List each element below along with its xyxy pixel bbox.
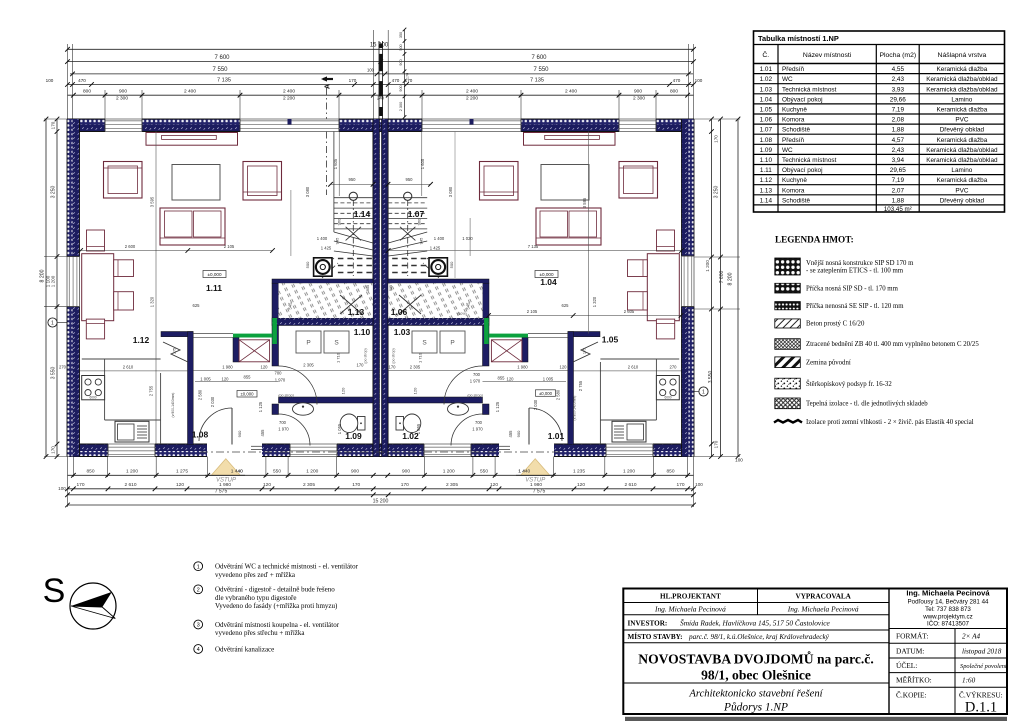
svg-text:500: 500: [399, 44, 403, 50]
svg-text:1:60: 1:60: [962, 677, 976, 685]
svg-text:2,43: 2,43: [892, 76, 905, 83]
svg-text:2 400: 2 400: [283, 89, 295, 95]
svg-text:2 105: 2 105: [224, 244, 235, 249]
svg-text:2 610: 2 610: [124, 482, 136, 488]
svg-text:2 610: 2 610: [628, 365, 639, 370]
svg-text:1,88: 1,88: [892, 197, 905, 204]
svg-text:DATUM:: DATUM:: [896, 647, 924, 656]
svg-text:Vyvedeno do fasády (+mřížka pr: Vyvedeno do fasády (+mřížka proti hmyzu): [215, 602, 338, 610]
svg-text:2 030: 2 030: [210, 396, 215, 407]
svg-text:parc.č. 98/1, k.ú.Olešnice, kr: parc.č. 98/1, k.ú.Olešnice, kraj Králove…: [688, 633, 830, 641]
svg-text:1 235: 1 235: [573, 468, 585, 474]
svg-text:vyvedeno přes zeď + mřížka: vyvedeno přes zeď + mřížka: [215, 571, 296, 579]
svg-text:470: 470: [78, 78, 86, 83]
svg-text:1 200: 1 200: [623, 468, 635, 474]
svg-text:1.02: 1.02: [760, 76, 773, 83]
svg-text:Č.KOPIE:: Č.KOPIE:: [896, 690, 927, 700]
svg-text:7 135: 7 135: [530, 78, 544, 84]
svg-text:2 755: 2 755: [149, 385, 154, 396]
svg-text:2,07: 2,07: [892, 187, 905, 194]
svg-text:170: 170: [714, 135, 719, 143]
svg-text:7 550: 7 550: [533, 67, 549, 73]
svg-text:120: 120: [176, 482, 184, 488]
svg-text:Tepelná izolace - tl. dle jedn: Tepelná izolace - tl. dle jednotlivých s…: [806, 401, 928, 408]
svg-text:Obývací pokoj: Obývací pokoj: [782, 96, 823, 103]
svg-text:800: 800: [670, 89, 678, 95]
svg-text:170: 170: [406, 73, 410, 79]
svg-text:1.04: 1.04: [540, 277, 557, 287]
svg-text:HL.PROJEKTANT: HL.PROJEKTANT: [660, 593, 721, 601]
svg-text:960: 960: [417, 218, 422, 225]
svg-text:Keramická dlažba: Keramická dlažba: [937, 137, 988, 144]
svg-text:Odvětrání kanalizace: Odvětrání kanalizace: [215, 645, 274, 653]
svg-text:Tabulka místností 1.NP: Tabulka místností 1.NP: [758, 34, 839, 43]
svg-text:1.09: 1.09: [760, 147, 773, 154]
svg-text:Vnější nosná konstrukce SIP SD: Vnější nosná konstrukce SIP SD 170 m: [806, 260, 914, 267]
svg-text:7 600: 7 600: [214, 55, 230, 61]
svg-text:2 300: 2 300: [399, 102, 403, 112]
svg-text:Název místnosti: Název místnosti: [803, 52, 852, 59]
svg-text:1.14: 1.14: [760, 197, 773, 204]
svg-text:625: 625: [193, 303, 201, 308]
svg-text:3 595: 3 595: [582, 197, 587, 208]
svg-text:3 080: 3 080: [305, 186, 310, 197]
svg-text:905: 905: [366, 285, 370, 291]
svg-text:470: 470: [392, 78, 400, 83]
svg-text:900: 900: [119, 89, 127, 95]
svg-text:NOVOSTAVBA DVOJDOMŮ na parc.č.: NOVOSTAVBA DVOJDOMŮ na parc.č.: [638, 651, 873, 667]
svg-text:550: 550: [480, 468, 488, 474]
svg-text:1.08: 1.08: [760, 137, 773, 144]
svg-text:1 980: 1 980: [517, 364, 528, 369]
svg-text:1.09: 1.09: [345, 431, 362, 441]
svg-text:Schodiště: Schodiště: [782, 197, 811, 204]
svg-text:Č.: Č.: [762, 50, 769, 59]
svg-text:905: 905: [389, 285, 393, 291]
svg-text:Šmída Radek, Havlíčkova 145, 5: Šmída Radek, Havlíčkova 145, 517 50 Čast…: [680, 618, 831, 628]
svg-text:±0,000: ±0,000: [539, 391, 553, 396]
svg-text:±0,000: ±0,000: [539, 272, 553, 277]
svg-text:Komora: Komora: [782, 117, 805, 124]
svg-text:P: P: [450, 340, 454, 347]
svg-text:2 605: 2 605: [624, 309, 635, 314]
svg-text:(po strop): (po strop): [364, 348, 368, 363]
svg-text:2 300: 2 300: [116, 95, 128, 101]
svg-text:1: 1: [702, 390, 705, 396]
svg-text:Keramická dlažba: Keramická dlažba: [937, 177, 988, 184]
svg-text:3,93: 3,93: [892, 86, 905, 93]
svg-text:2 580: 2 580: [556, 389, 561, 400]
svg-text:170: 170: [76, 482, 84, 488]
svg-text:Štěrkopískový podsyp fr. 16-32: Štěrkopískový podsyp fr. 16-32: [806, 380, 892, 388]
svg-text:3 550: 3 550: [51, 367, 57, 380]
svg-text:- se zateplením ETICS - tl. 10: - se zateplením ETICS - tl. 100 mm: [806, 268, 904, 275]
svg-text:1.10: 1.10: [354, 327, 371, 337]
svg-text:1 275: 1 275: [176, 468, 188, 474]
svg-text:1 320: 1 320: [592, 296, 597, 307]
svg-text:29,65: 29,65: [890, 167, 906, 174]
svg-text:Keramická dlažba/obklad: Keramická dlažba/obklad: [926, 147, 998, 154]
svg-text:3 595: 3 595: [150, 196, 155, 207]
svg-text:900: 900: [399, 59, 403, 65]
svg-text:175: 175: [583, 348, 587, 354]
svg-text:Společné povolení: Společné povolení: [960, 663, 1008, 670]
svg-text:1.13: 1.13: [348, 307, 365, 317]
svg-text:listopad 2018: listopad 2018: [962, 648, 1002, 656]
svg-text:2 755: 2 755: [578, 380, 583, 391]
svg-text:Příčka nenosná SE SIP - tl. 12: Příčka nenosná SE SIP - tl. 120 mm: [806, 303, 904, 310]
svg-text:(60%): (60%): [457, 312, 467, 316]
svg-text:Č.VÝKRESU:: Č.VÝKRESU:: [959, 690, 1003, 700]
svg-text:PVC: PVC: [955, 187, 969, 194]
svg-text:1 710: 1 710: [418, 352, 423, 363]
svg-text:1 005: 1 005: [200, 377, 211, 382]
svg-text:Beton prostý C 16/20: Beton prostý C 16/20: [806, 321, 865, 328]
svg-text:Ztracené bednění ZB 40 tl. 400: Ztracené bednění ZB 40 tl. 400 mm vyplně…: [806, 341, 979, 348]
svg-text:3 250: 3 250: [714, 186, 720, 199]
svg-text:1 320: 1 320: [150, 296, 155, 307]
svg-text:7 600: 7 600: [531, 55, 547, 61]
svg-text:dle vybraného typu digestoře: dle vybraného typu digestoře: [215, 594, 296, 602]
svg-text:2 600: 2 600: [125, 244, 136, 249]
svg-text:2 300: 2 300: [633, 95, 645, 101]
svg-text:4,55: 4,55: [892, 66, 905, 73]
svg-text:1.10: 1.10: [760, 157, 773, 164]
svg-text:1.01: 1.01: [760, 66, 773, 73]
svg-text:960: 960: [337, 218, 342, 225]
svg-text:100: 100: [695, 78, 703, 83]
svg-text:170: 170: [349, 78, 357, 83]
svg-text:Dřevěný obklad: Dřevěný obklad: [940, 197, 985, 204]
svg-text:900: 900: [237, 430, 242, 437]
svg-text:2 580: 2 580: [198, 389, 203, 400]
svg-text:550: 550: [273, 468, 281, 474]
svg-text:2 105: 2 105: [527, 309, 538, 314]
svg-text:(v:900-1400mm): (v:900-1400mm): [171, 393, 175, 418]
svg-text:6000: 6000: [89, 396, 96, 400]
svg-text:850: 850: [86, 468, 94, 474]
svg-text:2 305: 2 305: [303, 482, 315, 488]
svg-text:700: 700: [279, 420, 287, 425]
svg-text:Keramická dlažba: Keramická dlažba: [937, 107, 988, 114]
svg-text:1 425: 1 425: [321, 246, 332, 251]
svg-text:2 200: 2 200: [466, 95, 478, 101]
svg-text:855: 855: [244, 375, 252, 380]
svg-text:A: A: [325, 84, 332, 89]
svg-text:2 610: 2 610: [123, 365, 134, 370]
svg-text:120: 120: [413, 387, 418, 394]
svg-text:FORMÁT:: FORMÁT:: [896, 631, 929, 641]
svg-text:350: 350: [399, 32, 403, 38]
svg-text:Technická místnost: Technická místnost: [782, 86, 837, 93]
svg-text:Odvětrání WC a technické místn: Odvětrání WC a technické místnosti - el.…: [215, 563, 359, 571]
svg-text:1 200: 1 200: [443, 468, 455, 474]
svg-text:1.06: 1.06: [391, 307, 408, 317]
svg-text:3 250: 3 250: [51, 186, 57, 199]
svg-text:7 575: 7 575: [533, 488, 546, 494]
svg-text:1.07: 1.07: [760, 127, 773, 134]
svg-text:2 200: 2 200: [283, 95, 295, 101]
svg-text:MĚŘÍTKO:: MĚŘÍTKO:: [896, 675, 932, 685]
svg-text:S: S: [43, 572, 66, 610]
svg-text:1.11: 1.11: [206, 283, 222, 293]
svg-text:INVESTOR:: INVESTOR:: [628, 620, 668, 628]
svg-text:Keramická dlažba/obklad: Keramická dlažba/obklad: [926, 76, 998, 83]
svg-text:Příčka nosná SIP SD - tl. 170: Příčka nosná SIP SD - tl. 170 mm: [806, 285, 899, 292]
svg-text:6000: 6000: [664, 396, 671, 400]
svg-text:170: 170: [714, 440, 719, 448]
svg-text:1.13: 1.13: [760, 187, 773, 194]
svg-text:170: 170: [389, 364, 397, 369]
svg-text:1.01: 1.01: [548, 431, 565, 441]
svg-text:4: 4: [197, 647, 200, 653]
svg-text:950: 950: [406, 177, 414, 182]
svg-text:IČO: 87413507: IČO: 87413507: [927, 621, 970, 628]
svg-text:7 575: 7 575: [215, 488, 228, 494]
svg-text:7,19: 7,19: [892, 107, 905, 114]
svg-text:ÚČEL:: ÚČEL:: [896, 660, 917, 670]
svg-text:Technická místnost: Technická místnost: [782, 157, 837, 164]
svg-text:900: 900: [634, 89, 642, 95]
svg-text:1.12: 1.12: [760, 177, 773, 184]
svg-text:Schodiště: Schodiště: [782, 127, 811, 134]
svg-text:WC: WC: [782, 147, 793, 154]
svg-text:S: S: [422, 340, 427, 347]
svg-text:Ing. Michaela Pecinová: Ing. Michaela Pecinová: [906, 589, 990, 598]
svg-text:625: 625: [562, 303, 570, 308]
svg-text:1.11: 1.11: [760, 167, 772, 174]
svg-text:170: 170: [352, 482, 360, 488]
svg-text:545: 545: [288, 302, 293, 310]
svg-text:VYPRACOVALA: VYPRACOVALA: [796, 593, 852, 601]
svg-text:1 055: 1 055: [416, 423, 421, 434]
svg-text:1.08: 1.08: [192, 430, 209, 440]
svg-text:1 970: 1 970: [278, 427, 289, 432]
svg-text:1 055: 1 055: [337, 423, 342, 434]
svg-text:Odvětrání - digestoř - detailn: Odvětrání - digestoř - detailně bude řeš…: [215, 586, 335, 594]
svg-text:Architektonicko stavební řešen: Architektonicko stavební řešení: [688, 689, 823, 700]
svg-text:1.05: 1.05: [602, 335, 619, 345]
svg-text:Lamino: Lamino: [951, 167, 972, 174]
svg-text:170: 170: [51, 121, 56, 129]
svg-text:1: 1: [197, 564, 200, 570]
svg-text:500: 500: [305, 261, 310, 268]
svg-text:Kuchyně: Kuchyně: [782, 177, 807, 184]
svg-text:7 135: 7 135: [528, 244, 539, 249]
svg-text:100: 100: [46, 78, 54, 83]
svg-text:120: 120: [263, 482, 271, 488]
svg-text:VSTUP: VSTUP: [525, 478, 545, 484]
svg-text:270: 270: [59, 365, 67, 370]
svg-text:950: 950: [349, 177, 357, 182]
svg-text:www.projektym.cz: www.projektym.cz: [922, 614, 973, 621]
svg-text:945: 945: [335, 237, 340, 244]
svg-text:1 400: 1 400: [434, 236, 445, 241]
svg-text:2 030: 2 030: [533, 399, 538, 410]
svg-text:Předsíň: Předsíň: [782, 66, 804, 73]
svg-text:1.14: 1.14: [354, 209, 371, 219]
svg-text:29,66: 29,66: [890, 96, 906, 103]
svg-text:120: 120: [560, 364, 568, 369]
svg-text:Nášlapná vrstva: Nášlapná vrstva: [938, 52, 987, 59]
svg-text:170: 170: [401, 482, 409, 488]
svg-text:700: 700: [275, 370, 283, 375]
svg-text:(v:900-1400mm): (v:900-1400mm): [573, 396, 577, 421]
svg-text:1 100: 1 100: [46, 275, 51, 287]
svg-text:120: 120: [341, 387, 346, 394]
svg-text:7 600: 7 600: [719, 271, 725, 284]
svg-text:2 400: 2 400: [466, 89, 478, 95]
svg-text:Keramická dlažba/obklad: Keramická dlažba/obklad: [926, 157, 998, 164]
svg-text:2× A4: 2× A4: [962, 633, 981, 641]
svg-text:Zemina původní: Zemina původní: [806, 359, 851, 366]
svg-text:1 440: 1 440: [231, 468, 243, 474]
svg-text:1 125: 1 125: [258, 401, 263, 412]
svg-text:3 080: 3 080: [448, 186, 453, 197]
svg-text:98/1, obec Olešnice: 98/1, obec Olešnice: [701, 668, 811, 683]
svg-text:455: 455: [260, 429, 265, 437]
svg-text:Keramická dlažba: Keramická dlažba: [937, 66, 988, 73]
svg-text:170: 170: [676, 482, 684, 488]
svg-text:1.03: 1.03: [394, 327, 411, 337]
svg-text:vyvedeno přes střechu + mřížka: vyvedeno přes střechu + mřížka: [215, 629, 305, 637]
svg-text:1 425: 1 425: [430, 246, 441, 251]
svg-text:1.06: 1.06: [760, 117, 773, 124]
svg-text:120: 120: [261, 364, 269, 369]
svg-text:100: 100: [735, 458, 743, 463]
svg-text:Ing. Michaela Pecinová: Ing. Michaela Pecinová: [654, 605, 726, 614]
svg-text:7 550: 7 550: [212, 67, 228, 73]
svg-text:100: 100: [695, 482, 703, 487]
svg-text:Podľousy 14, Bečváry 281 44: Podľousy 14, Bečváry 281 44: [908, 599, 989, 606]
svg-text:(po strop): (po strop): [278, 394, 293, 398]
svg-text:LEGENDA HMOT:: LEGENDA HMOT:: [775, 235, 854, 245]
svg-text:120: 120: [490, 482, 498, 488]
svg-text:1 200: 1 200: [306, 468, 318, 474]
svg-text:Keramická dlažba/obklad: Keramická dlažba/obklad: [926, 86, 998, 93]
svg-text:1 980: 1 980: [222, 364, 233, 369]
svg-text:Odvětrání místnosti koupelna -: Odvětrání místnosti koupelna - el. venti…: [215, 621, 340, 629]
svg-text:1 400: 1 400: [317, 236, 328, 241]
svg-text:1 970: 1 970: [275, 378, 286, 383]
svg-text:120: 120: [577, 482, 585, 488]
svg-text:2,43: 2,43: [892, 147, 905, 154]
svg-text:103,45 m²: 103,45 m²: [884, 206, 912, 213]
svg-text:1 200: 1 200: [126, 468, 138, 474]
svg-text:1.03: 1.03: [760, 86, 773, 93]
svg-text:1 605: 1 605: [420, 158, 425, 169]
svg-text:3: 3: [197, 623, 200, 629]
svg-text:VSTUP: VSTUP: [216, 478, 236, 484]
svg-text:120: 120: [507, 377, 515, 382]
svg-text:700: 700: [473, 372, 481, 377]
svg-text:900: 900: [351, 468, 359, 474]
svg-text:900: 900: [402, 468, 410, 474]
svg-text:1 200: 1 200: [705, 260, 710, 272]
svg-text:MÍSTO STAVBY:: MÍSTO STAVBY:: [628, 631, 683, 641]
svg-text:±0,000: ±0,000: [207, 272, 221, 277]
svg-text:S: S: [334, 340, 339, 347]
svg-text:1 125: 1 125: [495, 401, 500, 412]
svg-text:1 970: 1 970: [470, 378, 481, 383]
svg-text:Tel: 737 838 873: Tel: 737 838 873: [925, 606, 971, 613]
svg-text:1.04: 1.04: [760, 96, 773, 103]
svg-text:Lamino: Lamino: [951, 96, 972, 103]
svg-text:2 610: 2 610: [624, 482, 636, 488]
svg-text:1: 1: [51, 321, 54, 327]
svg-text:WC: WC: [782, 76, 793, 83]
svg-text:3 550: 3 550: [708, 371, 714, 384]
svg-text:2: 2: [197, 587, 200, 593]
svg-text:D.1.1: D.1.1: [965, 700, 997, 716]
svg-text:100: 100: [367, 68, 375, 73]
svg-text:700: 700: [475, 420, 483, 425]
svg-text:(po strop): (po strop): [467, 394, 482, 398]
svg-text:470: 470: [673, 78, 681, 83]
svg-text:100: 100: [58, 486, 66, 491]
svg-text:8 200: 8 200: [728, 272, 734, 285]
svg-text:2 305: 2 305: [446, 482, 458, 488]
svg-text:3,94: 3,94: [892, 157, 905, 164]
svg-text:Kuchyně: Kuchyně: [782, 107, 807, 114]
svg-text:270: 270: [670, 365, 678, 370]
svg-text:1,88: 1,88: [892, 127, 905, 134]
svg-text:P: P: [306, 340, 310, 347]
svg-text:7,19: 7,19: [892, 177, 905, 184]
svg-text:2 400: 2 400: [565, 89, 577, 95]
svg-text:Ing. Michaela Pecinová: Ing. Michaela Pecinová: [787, 605, 859, 614]
svg-text:945: 945: [419, 237, 424, 244]
svg-text:Izolace proti zemní vlhkosti -: Izolace proti zemní vlhkosti - 2 × živič…: [806, 419, 974, 426]
svg-text:1 605: 1 605: [333, 158, 338, 169]
svg-text:1 970: 1 970: [472, 427, 483, 432]
svg-text:1 005: 1 005: [543, 377, 554, 382]
svg-text:2 305: 2 305: [410, 364, 421, 369]
svg-text:2,08: 2,08: [892, 117, 905, 124]
svg-text:120: 120: [222, 377, 230, 382]
svg-text:1.05: 1.05: [760, 107, 773, 114]
svg-text:900: 900: [399, 85, 403, 91]
svg-text:1 440: 1 440: [518, 468, 530, 474]
svg-text:PVC: PVC: [955, 117, 969, 124]
svg-text:855: 855: [498, 376, 506, 381]
svg-text:500: 500: [449, 261, 454, 268]
svg-text:1.12: 1.12: [133, 335, 150, 345]
svg-text:170: 170: [51, 446, 56, 454]
svg-text:Předsíň: Předsíň: [782, 137, 804, 144]
svg-text:545: 545: [466, 302, 471, 310]
svg-text:Půdorys 1.NP: Půdorys 1.NP: [723, 702, 788, 714]
svg-text:850: 850: [666, 468, 674, 474]
svg-text:1.07: 1.07: [408, 209, 425, 219]
svg-text:Obývací pokoj: Obývací pokoj: [782, 167, 823, 174]
svg-text:Plocha (m2): Plocha (m2): [879, 52, 916, 59]
svg-text:Dřevěný obklad: Dřevěný obklad: [940, 127, 985, 134]
svg-text:±0,000: ±0,000: [240, 392, 254, 397]
svg-text:1 710: 1 710: [336, 352, 341, 363]
svg-text:455: 455: [508, 430, 513, 438]
svg-text:Komora: Komora: [782, 187, 805, 194]
svg-text:2 305: 2 305: [303, 363, 314, 368]
svg-text:2 400: 2 400: [184, 89, 196, 95]
svg-text:175: 175: [173, 348, 177, 354]
svg-text:15 200: 15 200: [373, 499, 389, 505]
svg-text:1 200: 1 200: [51, 275, 56, 287]
svg-text:800: 800: [83, 89, 91, 95]
svg-text:4,57: 4,57: [892, 137, 905, 144]
svg-text:1 020: 1 020: [462, 236, 473, 241]
svg-text:7 135: 7 135: [217, 78, 231, 84]
